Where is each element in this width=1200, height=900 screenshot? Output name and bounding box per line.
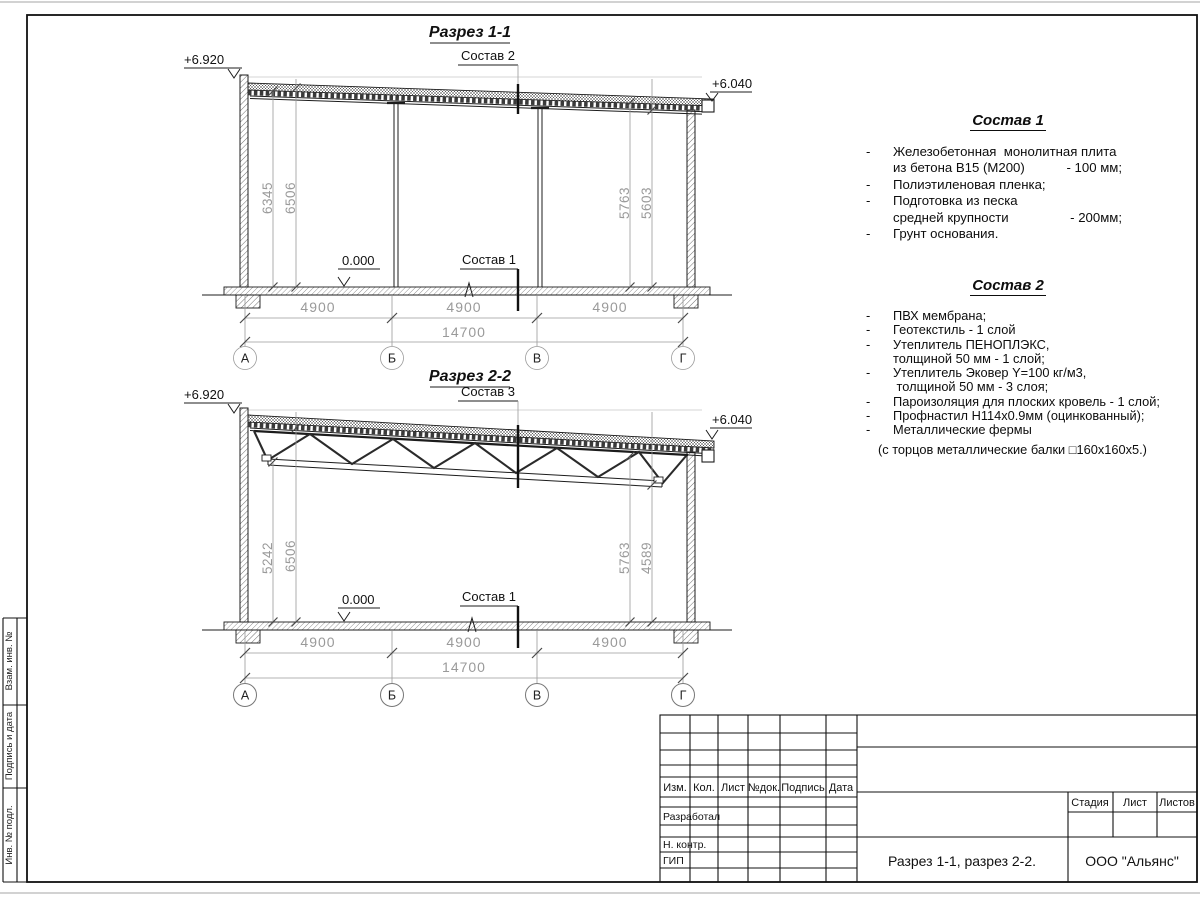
tb-col-list: Лист (721, 782, 745, 794)
section-1-1-drawing: Разрез 1-1 +6.920 (184, 24, 752, 370)
svg-text:14700: 14700 (442, 324, 486, 340)
dim-left-inner: 6506 (283, 182, 298, 214)
svg-text:4900: 4900 (446, 299, 481, 315)
svg-text:4900: 4900 (300, 299, 335, 315)
tb-company: ООО "Альянс" (1085, 853, 1179, 869)
svg-text:+6.040: +6.040 (712, 76, 752, 91)
material-line: средней крупности- 200мм; (858, 210, 1158, 226)
tb-col-data: Дата (829, 782, 854, 794)
roof-edge-beam (702, 100, 714, 112)
tb-stage-label: Стадия (1071, 797, 1109, 809)
roof-edge-beam-2 (702, 450, 714, 462)
footing-left-2 (236, 630, 260, 643)
svg-text:+6.040: +6.040 (712, 412, 752, 427)
dim-right-outer-2: 4589 (639, 542, 654, 574)
material-line: -Подготовка из песка (858, 193, 1158, 209)
axis-bubble-V-2: В (533, 689, 541, 703)
material-line: -Утеплитель ПЕНОПЛЭКС, (858, 338, 1158, 352)
axis-bubble-V: В (533, 352, 541, 366)
material-line: из бетона В15 (М200)- 100 мм; (858, 160, 1158, 176)
column-B (387, 103, 405, 287)
material-line: -Полиэтиленовая пленка; (858, 177, 1158, 193)
tb-row-razrabotal: Разработал (663, 811, 720, 823)
svg-text:4900: 4900 (300, 634, 335, 650)
footing-left (236, 295, 260, 308)
drawing-sheet: Взам. инв. № Подпись и дата Инв. № подл.… (0, 0, 1200, 900)
composition-2-title: Состав 2 (858, 277, 1158, 294)
material-line: толщиной 50 мм - 1 слой; (858, 352, 1158, 366)
tb-doc-title: Разрез 1-1, разрез 2-2. (888, 853, 1036, 869)
dim-left-inner-2: 6506 (283, 540, 298, 572)
dimension-chain-2: 4900 4900 4900 14700 А Б В Г (234, 631, 695, 707)
svg-text:Состав 2: Состав 2 (461, 48, 515, 63)
svg-text:Состав 1: Состав 1 (462, 589, 516, 604)
tb-row-nkontr: Н. контр. (663, 839, 706, 851)
svg-text:4900: 4900 (592, 299, 627, 315)
svg-text:Состав 1: Состав 1 (462, 252, 516, 267)
axis-bubble-G-2: Г (680, 689, 687, 703)
footing-right-2 (674, 630, 698, 643)
composition-1-block: Состав 1 -Железобетонная монолитная плит… (858, 112, 1158, 242)
level-mark-6920-2: +6.920 (184, 387, 242, 413)
axis-bubble-G: Г (680, 352, 687, 366)
material-line: -Геотекстиль - 1 слой (858, 323, 1158, 337)
left-margin-cells: Взам. инв. № Подпись и дата Инв. № подл. (3, 618, 27, 882)
footing-right (674, 295, 698, 308)
section-1-1-title: Разрез 1-1 (429, 24, 511, 41)
svg-text:4900: 4900 (446, 634, 481, 650)
material-line: -Пароизоляция для плоских кровель - 1 сл… (858, 395, 1158, 409)
level-mark-6040: +6.040 (706, 76, 752, 101)
wall-left-2 (240, 408, 248, 622)
dim-right-inner: 5763 (617, 187, 632, 219)
tb-row-gip: ГИП (663, 855, 684, 867)
composition-2-block: Состав 2 -ПВХ мембрана; -Геотекстиль - 1… (858, 277, 1158, 457)
margin-label-inv: Инв. № подл. (4, 805, 15, 864)
dimension-chain: 4900 4900 4900 14700 А Б В Г (234, 296, 695, 370)
wall-right (687, 110, 695, 287)
tb-col-izm: Изм. (663, 782, 687, 794)
svg-text:0.000: 0.000 (342, 592, 375, 607)
title-block: Изм. Кол. Лист №док. Подпись Дата Разраб… (660, 715, 1197, 882)
wall-right-2 (687, 452, 695, 622)
section-2-2-title: Разрез 2-2 (429, 368, 511, 385)
tb-col-podpis: Подпись (781, 782, 825, 794)
composition-1-list: -Железобетонная монолитная плита из бето… (858, 144, 1158, 242)
material-line: -Железобетонная монолитная плита (858, 144, 1158, 160)
svg-text:4900: 4900 (592, 634, 627, 650)
tb-col-dok: №док. (748, 782, 780, 794)
axis-bubble-B: Б (388, 352, 396, 366)
margin-label-vzam: Взам. инв. № (4, 632, 15, 691)
tb-col-kol: Кол. (693, 782, 715, 794)
composition-2-note: (с торцов металлические балки □160х160х5… (858, 443, 1158, 457)
svg-text:0.000: 0.000 (342, 253, 375, 268)
level-mark-6920: +6.920 (184, 52, 242, 78)
svg-text:Состав 3: Состав 3 (461, 384, 515, 399)
material-line: -Профнастил Н114х0.9мм (оцинкованный); (858, 409, 1158, 423)
level-mark-zero: 0.000 (338, 253, 380, 286)
material-line: -Металлические фермы (858, 423, 1158, 437)
svg-text:+6.920: +6.920 (184, 387, 224, 402)
dim-right-outer: 5603 (639, 187, 654, 219)
material-line: -Утеплитель Эковер Y=100 кг/м3, (858, 366, 1158, 380)
dim-left-outer: 6345 (260, 182, 275, 214)
svg-text:+6.920: +6.920 (184, 52, 224, 67)
level-mark-6040-2: +6.040 (706, 412, 752, 439)
composition-2-list: -ПВХ мембрана; -Геотекстиль - 1 слой -Ут… (858, 309, 1158, 457)
axis-bubble-A: А (241, 352, 250, 366)
material-line: толщиной 50 мм - 3 слоя; (858, 380, 1158, 394)
material-line: -ПВХ мембрана; (858, 309, 1158, 323)
svg-text:14700: 14700 (442, 659, 486, 675)
material-line: -Грунт основания. (858, 226, 1158, 242)
dim-right-inner-2: 5763 (617, 542, 632, 574)
axis-bubble-B-2: Б (388, 689, 396, 703)
wall-left (240, 75, 248, 287)
level-mark-zero-2: 0.000 (338, 592, 380, 621)
tb-sheets-label: Листов (1159, 797, 1195, 809)
section-2-2-drawing: Разрез 2-2 +6.920 (184, 368, 752, 707)
dim-left-outer-2: 5242 (260, 542, 275, 574)
column-V (531, 108, 549, 287)
margin-label-podpis: Подпись и дата (4, 711, 15, 780)
floor-slab-2 (224, 622, 710, 630)
composition-1-title: Состав 1 (858, 112, 1158, 129)
axis-bubble-A-2: А (241, 689, 250, 703)
tb-sheet-label: Лист (1123, 797, 1147, 809)
